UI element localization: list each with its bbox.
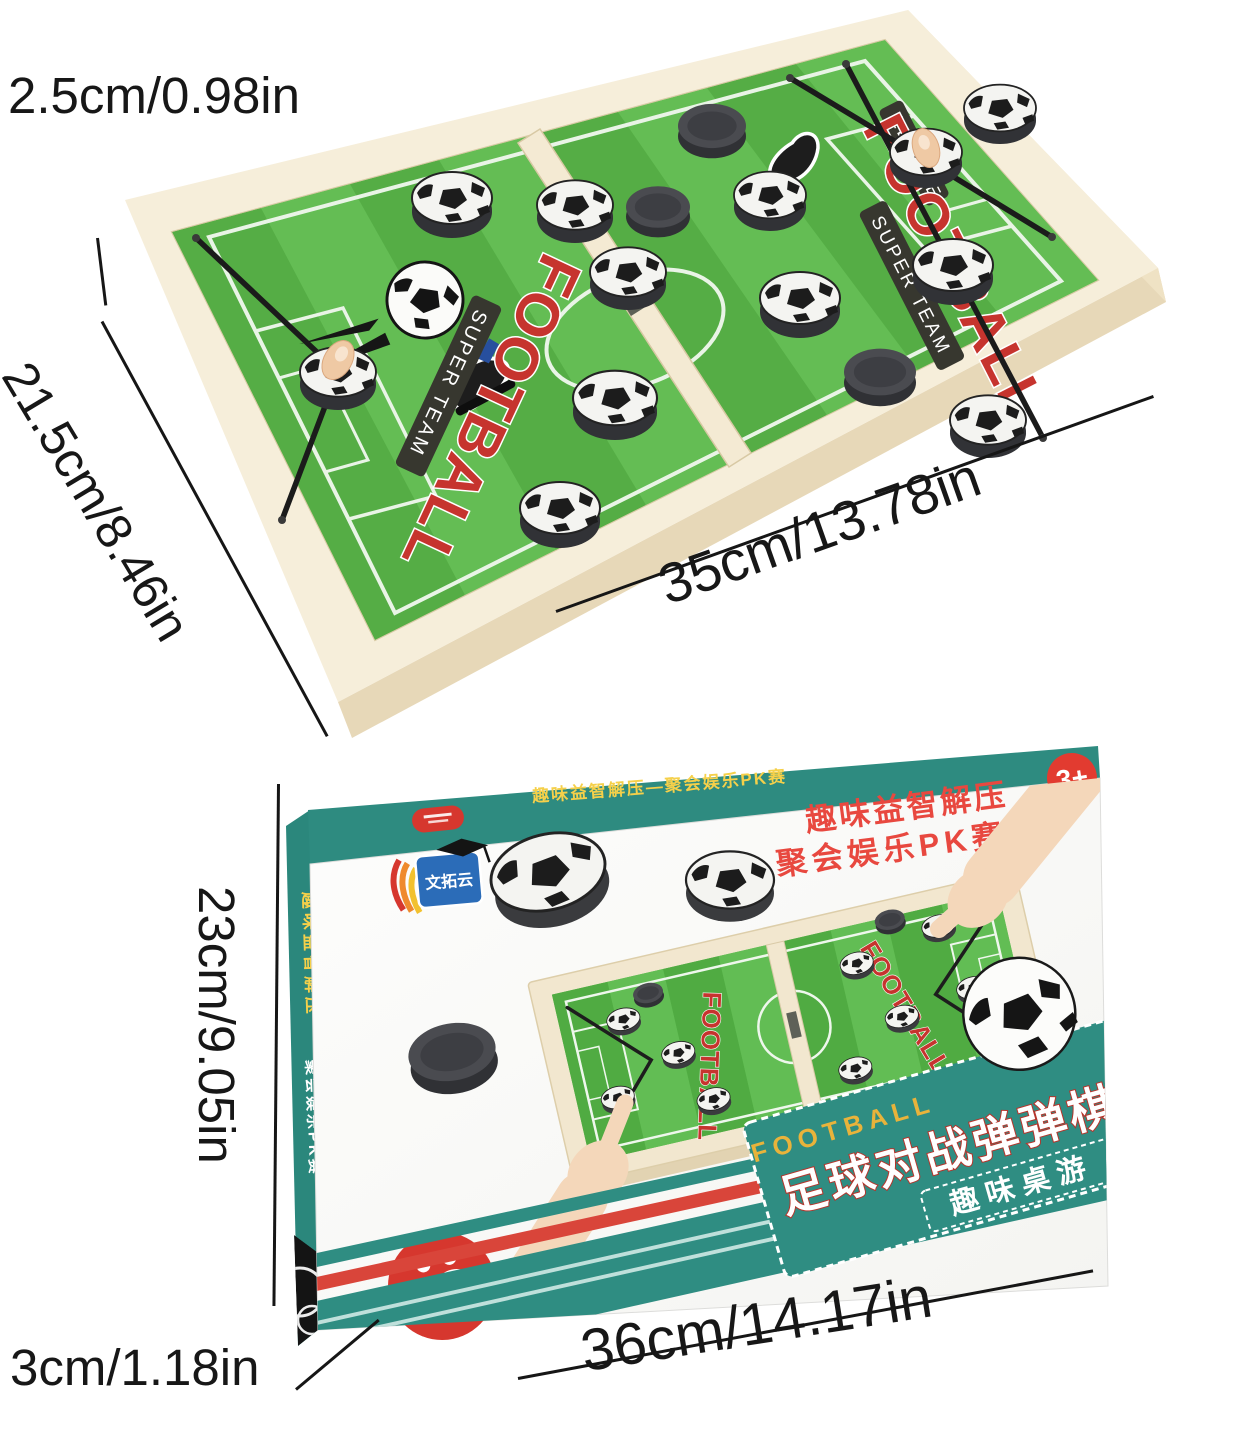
puck bbox=[412, 172, 492, 238]
puck bbox=[626, 186, 690, 237]
box-height-label: 23cm/9.05in bbox=[187, 886, 246, 1164]
puck bbox=[520, 482, 600, 548]
svg-text:FOOTBALL: FOOTBALL bbox=[692, 991, 727, 1141]
puck bbox=[734, 172, 806, 231]
puck bbox=[760, 272, 840, 338]
mini-field-logo-left: FOOTBALL bbox=[692, 991, 727, 1141]
puck bbox=[844, 349, 916, 407]
product-gallery-image: FOOTBALL SUPER TEAM LEAGUE FOOTBALL SUPE… bbox=[0, 0, 1239, 1430]
board-thickness-label: 2.5cm/0.98in bbox=[8, 66, 300, 125]
puck bbox=[537, 180, 613, 243]
puck bbox=[590, 247, 666, 310]
puck bbox=[913, 239, 993, 305]
puck bbox=[678, 104, 746, 158]
puck bbox=[573, 371, 657, 440]
puck bbox=[686, 851, 774, 921]
puck bbox=[964, 85, 1036, 144]
box-depth-label: 3cm/1.18in bbox=[10, 1338, 259, 1397]
